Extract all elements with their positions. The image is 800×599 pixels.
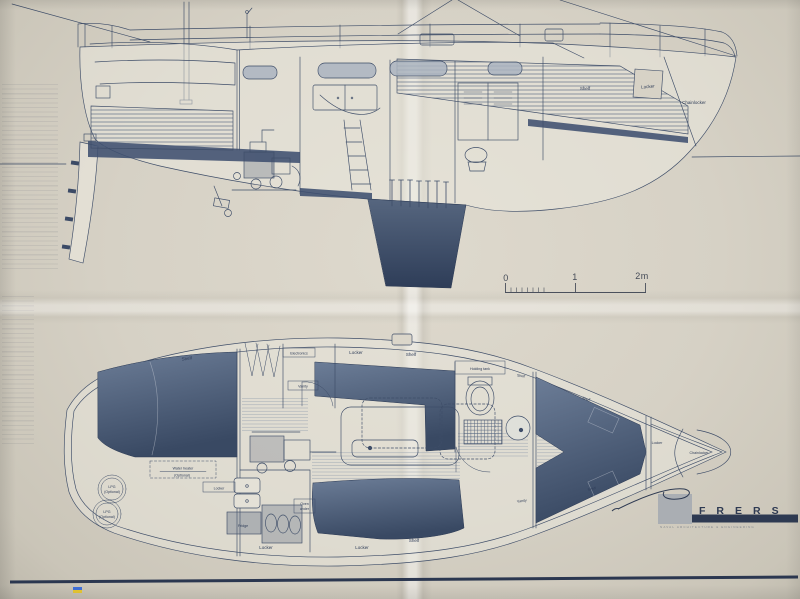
blueprint-photo: Shelf Locker Chainlocker 0 1 2m — [0, 0, 800, 599]
label-fridge: Fridge — [238, 524, 248, 528]
scale-bar: 0 1 2m — [503, 271, 649, 293]
color-mark — [73, 587, 82, 593]
shower-grate — [464, 420, 502, 444]
sheet-border-line — [10, 577, 798, 582]
label-vanity-aft: Vanity — [298, 385, 308, 389]
label-water-heater-1: Water heater — [173, 467, 194, 471]
label-water-heater-2: (Optional) — [174, 474, 190, 478]
label-oven-2: under — [300, 507, 310, 511]
fridge-box — [227, 512, 261, 534]
label-holding-tank: Holding tank — [470, 367, 490, 371]
label-lpg-2a: LPG — [103, 510, 110, 514]
label-locker-bow: Locker — [652, 441, 664, 445]
scale-tick-1: 1 — [572, 272, 578, 282]
logo-wordmark: FRERS — [699, 505, 790, 517]
label-lpg-1a: LPG — [108, 485, 115, 489]
label-chainlocker-plan: Chainlocker — [690, 451, 710, 455]
sink-bowl-1 — [234, 478, 260, 493]
label-locker-aft-btm: Locker — [259, 545, 273, 550]
label-lpg-2b: (Optional) — [99, 515, 115, 519]
saloon-settee-stbd — [312, 479, 464, 540]
label-shelf-saloon: Shelf — [406, 352, 417, 357]
label-shelf-saloon-btm: Shelf — [409, 538, 420, 543]
label-lpg-1b: (Optional) — [104, 490, 120, 494]
scale-tick-2m: 2m — [635, 271, 649, 281]
label-oven-1: Oven — [300, 502, 309, 506]
aft-double-berth — [98, 352, 237, 457]
aft-berth-slats — [91, 106, 233, 150]
label-electronics: Electronics — [290, 352, 308, 356]
label-locker-saloon: Locker — [349, 350, 363, 355]
plan-view: Shelf Electronics Vanity Locker Shelf Ho… — [64, 334, 731, 566]
fore-hatch — [392, 334, 412, 345]
stove — [262, 505, 302, 543]
label-locker-saloon-btm: Locker — [355, 545, 369, 550]
scale-tick-0: 0 — [503, 273, 509, 283]
underwater-fitting — [213, 186, 231, 217]
logo-tagline: NAVAL ARCHITECTURE & ENGINEERING — [660, 525, 755, 529]
head-sink — [506, 416, 530, 440]
logo-square — [658, 494, 692, 524]
label-locker-galley: Locker — [214, 487, 226, 491]
side-view: Shelf Locker Chainlocker — [0, 0, 800, 288]
label-shelf-side: Shelf — [580, 86, 591, 91]
boat-drawing: Shelf Locker Chainlocker 0 1 2m — [0, 0, 800, 599]
frers-logo: FRERS NAVAL ARCHITECTURE & ENGINEERING — [612, 489, 798, 529]
keel — [368, 199, 466, 288]
sink-bowl-2 — [234, 494, 260, 508]
label-chainlocker-side: Chainlocker — [682, 100, 706, 105]
